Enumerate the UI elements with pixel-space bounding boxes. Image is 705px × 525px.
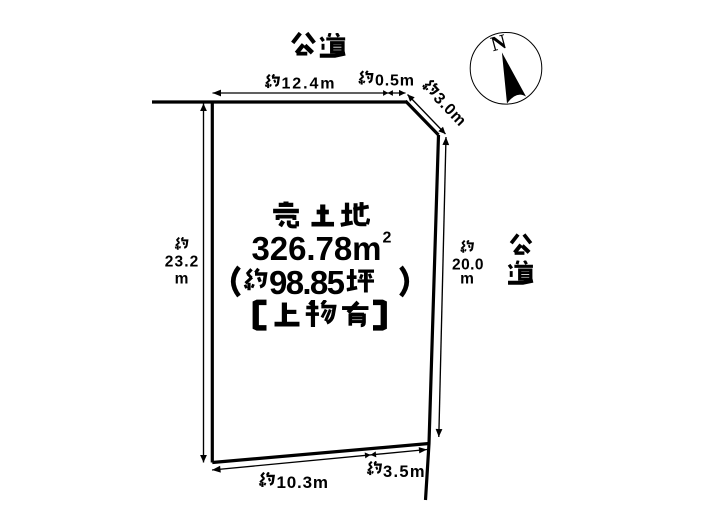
svg-text:98.85: 98.85 [269,264,345,301]
svg-text:23.2: 23.2 [165,254,199,271]
svg-text:326.78m: 326.78m [252,230,382,267]
svg-text:10.3m: 10.3m [277,473,329,492]
svg-text:2: 2 [383,230,392,247]
svg-text:m: m [175,271,189,288]
svg-text:0.5m: 0.5m [375,73,414,90]
svg-text:m: m [460,271,474,288]
svg-text:3.5m: 3.5m [383,463,425,481]
